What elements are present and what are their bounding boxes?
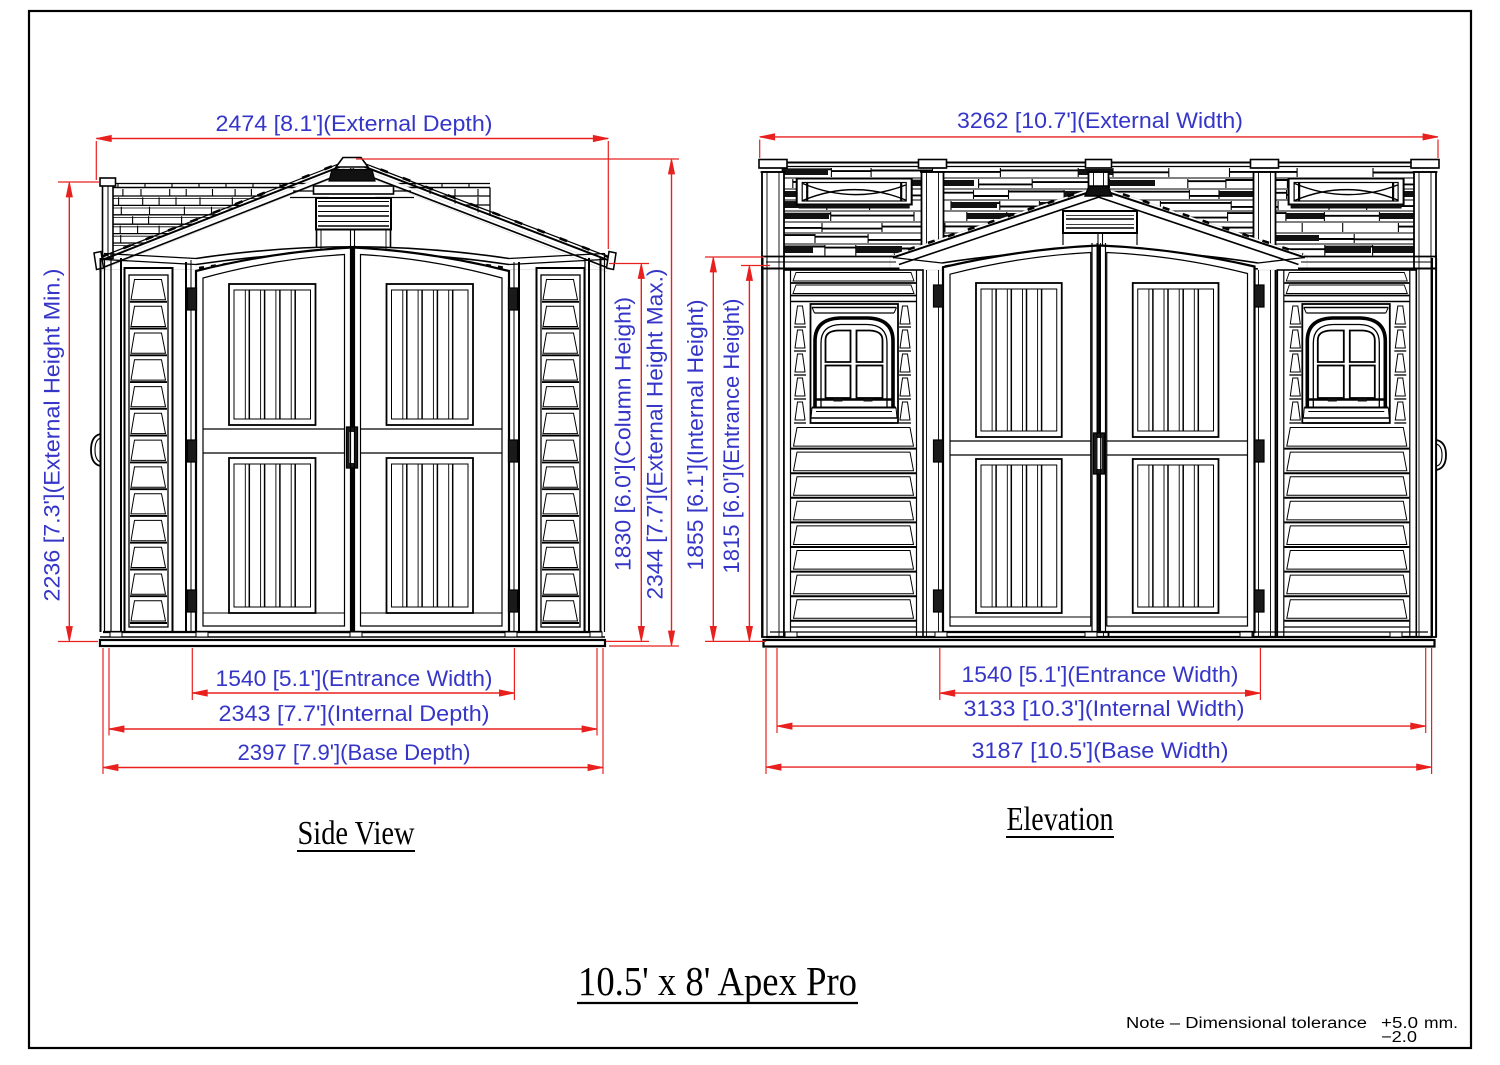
svg-text:2474 [8.1'](External Depth): 2474 [8.1'](External Depth) [216,111,493,136]
svg-text:Elevation: Elevation [1007,801,1114,838]
svg-text:1540 [5.1'](Entrance Width): 1540 [5.1'](Entrance Width) [962,662,1239,687]
svg-text:2343 [7.7'](Internal Depth): 2343 [7.7'](Internal Depth) [219,701,490,726]
svg-text:2344 [7.7'](External Height: 2344 [7.7'](External Height Max.) [643,269,668,600]
svg-text:3133 [10.3'](Internal Width): 3133 [10.3'](Internal Width) [964,696,1245,721]
svg-text:−2.0: −2.0 [1381,1029,1417,1046]
svg-text:3262 [10.7'](External Width): 3262 [10.7'](External Width) [957,108,1243,133]
svg-text:10.5' x 8' Apex Pro: 10.5' x 8' Apex Pro [578,958,857,1004]
svg-text:Side View: Side View [298,815,415,852]
svg-text:2397 [7.9'](Base Depth): 2397 [7.9'](Base Depth) [238,740,471,765]
svg-text:1815 [6.0'](Entrance Height): 1815 [6.0'](Entrance Height) [719,299,744,574]
svg-text:1540 [5.1'](Entrance Width): 1540 [5.1'](Entrance Width) [216,666,493,691]
svg-text:Note – Dimensional toleranc: Note – Dimensional tolerance [1126,1015,1367,1032]
svg-text:2236 [7.3'](External Height: 2236 [7.3'](External Height Min.) [40,269,65,602]
svg-text:1830 [6.0'](Column Height): 1830 [6.0'](Column Height) [611,297,636,571]
svg-text:3187 [10.5'](Base Width): 3187 [10.5'](Base Width) [972,738,1229,763]
svg-text:mm.: mm. [1424,1015,1458,1032]
svg-text:1855 [6.1'](Internal Height): 1855 [6.1'](Internal Height) [683,300,708,571]
